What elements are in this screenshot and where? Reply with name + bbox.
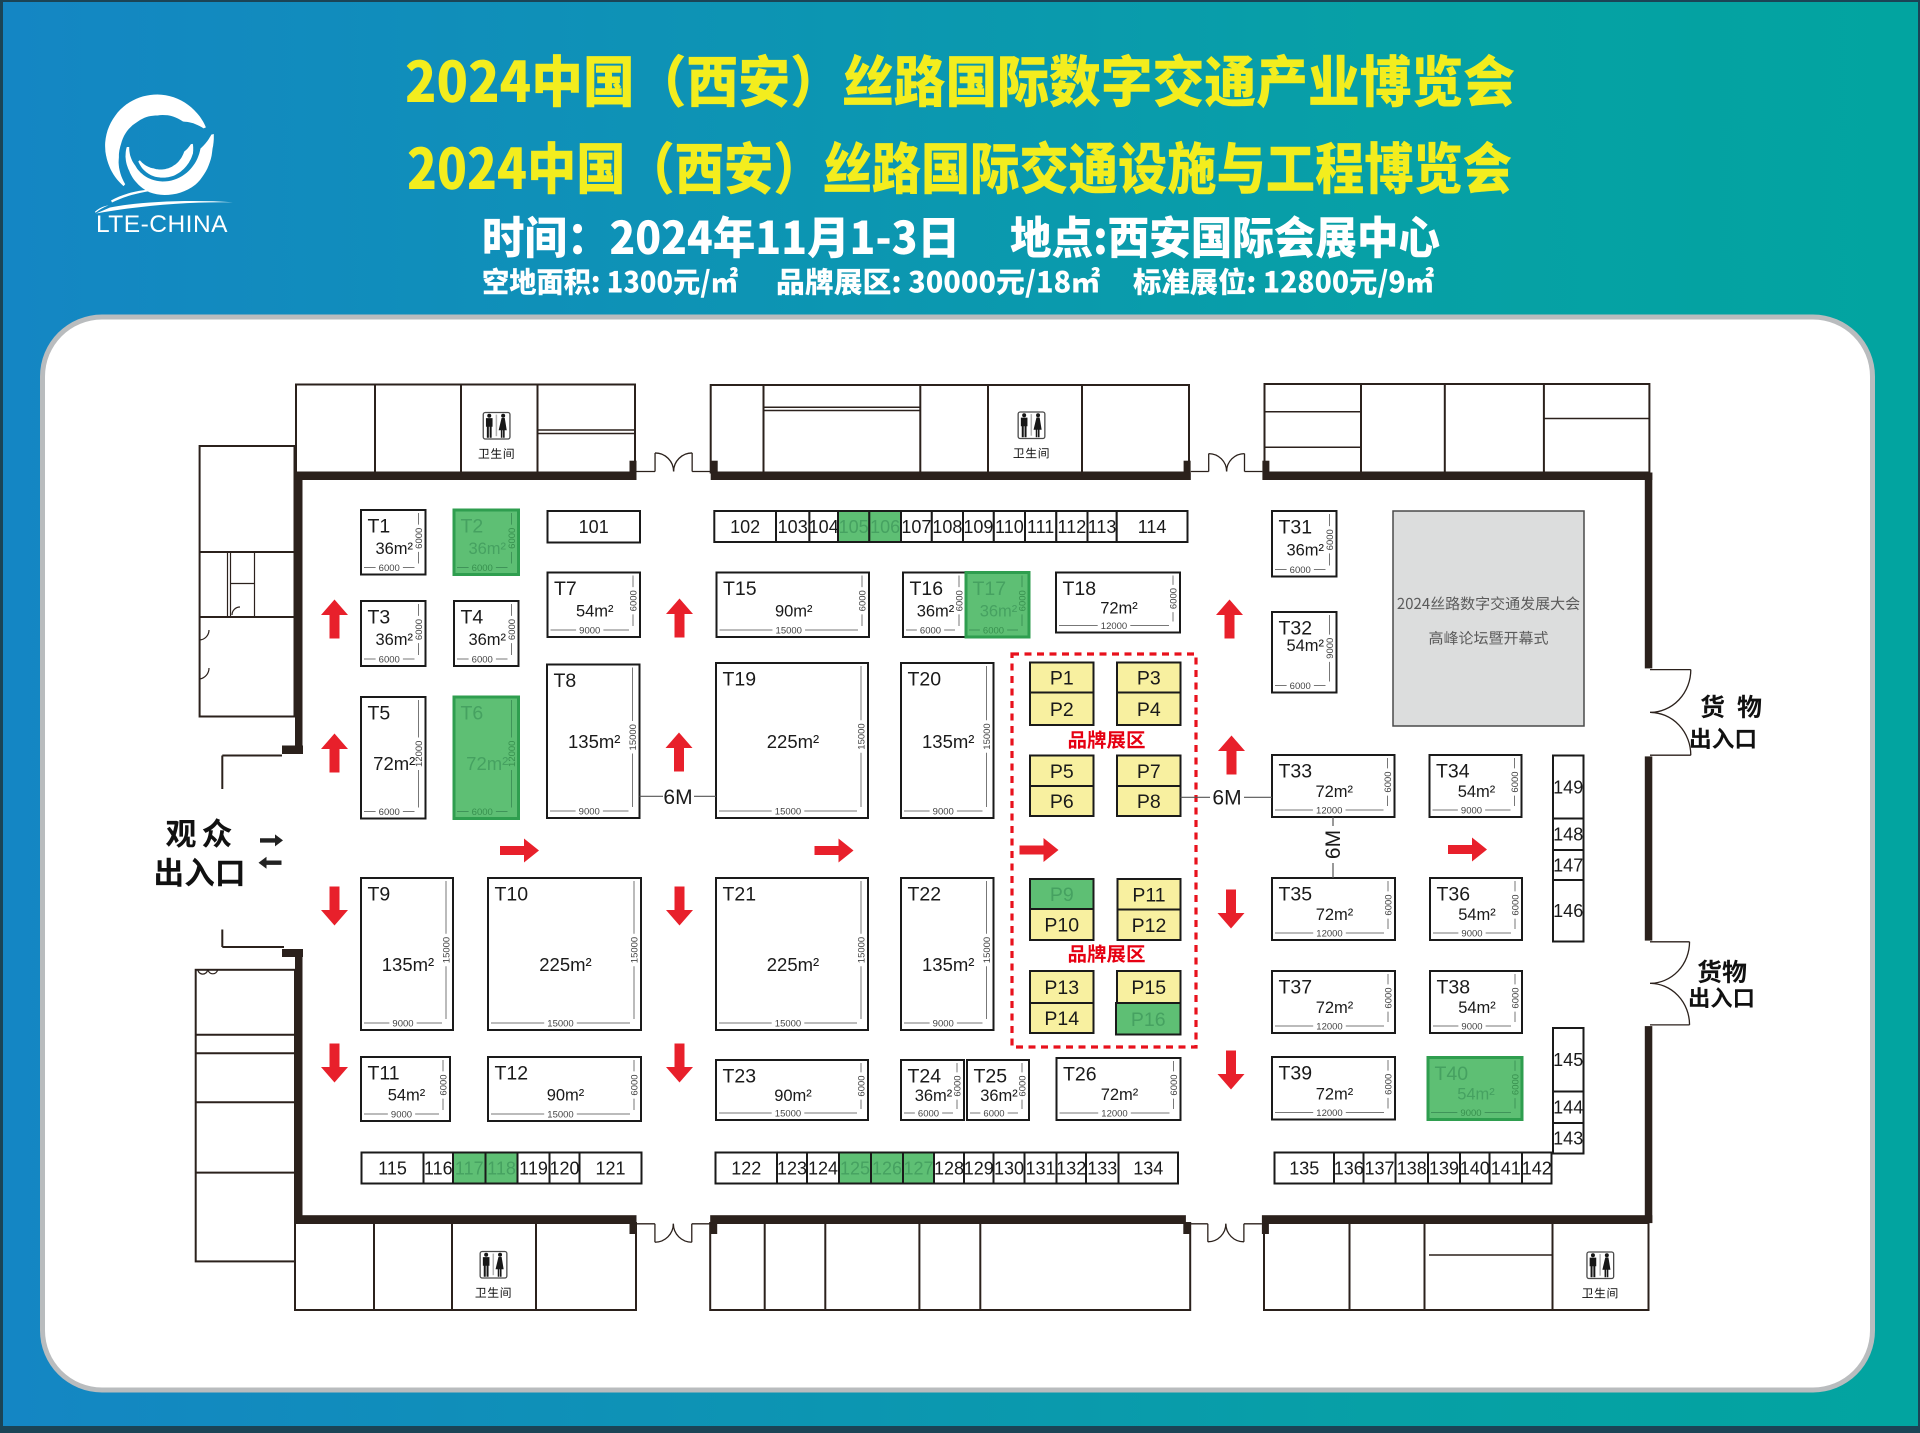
svg-text:6000: 6000: [379, 563, 400, 574]
svg-text:36m²: 36m²: [1286, 542, 1324, 560]
svg-text:T40: T40: [1435, 1063, 1469, 1085]
svg-text:12000: 12000: [414, 741, 425, 767]
svg-text:T25: T25: [974, 1066, 1008, 1088]
svg-text:T38: T38: [1437, 977, 1471, 999]
svg-text:P9: P9: [1050, 884, 1074, 906]
svg-text:118: 118: [487, 1158, 516, 1178]
svg-text:120: 120: [549, 1158, 579, 1178]
svg-text:132: 132: [1056, 1158, 1086, 1178]
svg-text:T23: T23: [723, 1066, 757, 1088]
svg-text:72m²: 72m²: [466, 753, 508, 774]
svg-text:T7: T7: [554, 578, 577, 600]
svg-text:54m²: 54m²: [388, 1087, 426, 1105]
svg-text:6000: 6000: [1383, 1074, 1394, 1095]
svg-text:225m²: 225m²: [539, 954, 591, 975]
svg-text:6000: 6000: [1383, 771, 1394, 792]
svg-text:T35: T35: [1279, 884, 1313, 906]
svg-text:72m²: 72m²: [373, 753, 415, 774]
svg-text:145: 145: [1553, 1050, 1583, 1070]
svg-text:54m²: 54m²: [576, 602, 614, 620]
svg-text:P15: P15: [1131, 977, 1166, 999]
svg-text:148: 148: [1553, 825, 1583, 845]
svg-text:6000: 6000: [918, 1108, 939, 1119]
svg-text:101: 101: [579, 517, 609, 537]
svg-text:225m²: 225m²: [767, 731, 819, 752]
svg-text:36m²: 36m²: [980, 1087, 1018, 1105]
svg-text:147: 147: [1553, 855, 1583, 875]
svg-text:15000: 15000: [628, 724, 639, 750]
svg-text:111: 111: [1027, 517, 1054, 537]
svg-text:T3: T3: [368, 607, 391, 629]
svg-text:6000: 6000: [1510, 1074, 1521, 1095]
svg-text:15000: 15000: [441, 937, 452, 963]
svg-text:106: 106: [870, 517, 900, 537]
svg-text:9000: 9000: [392, 1018, 413, 1029]
svg-text:6000: 6000: [379, 654, 400, 665]
svg-text:116: 116: [424, 1158, 453, 1178]
svg-text:9000: 9000: [1460, 1108, 1481, 1119]
svg-text:T6: T6: [461, 703, 484, 725]
svg-text:6000: 6000: [857, 590, 868, 611]
svg-text:105: 105: [839, 517, 869, 537]
svg-text:P12: P12: [1132, 915, 1167, 937]
svg-text:102: 102: [730, 517, 760, 537]
svg-text:P3: P3: [1137, 668, 1161, 690]
svg-text:36m²: 36m²: [375, 631, 413, 649]
svg-text:138: 138: [1397, 1158, 1427, 1178]
svg-text:P10: P10: [1044, 915, 1079, 937]
svg-text:131: 131: [1025, 1158, 1055, 1178]
svg-text:9000: 9000: [933, 806, 954, 817]
svg-text:T12: T12: [495, 1063, 529, 1085]
svg-text:P11: P11: [1132, 884, 1165, 906]
svg-text:6000: 6000: [1169, 1074, 1180, 1095]
svg-text:124: 124: [808, 1158, 838, 1178]
svg-text:P6: P6: [1050, 791, 1074, 813]
svg-text:115: 115: [378, 1158, 407, 1178]
svg-text:T26: T26: [1063, 1064, 1097, 1086]
svg-text:125: 125: [840, 1158, 870, 1178]
svg-text:72m²: 72m²: [1316, 999, 1354, 1017]
svg-text:142: 142: [1522, 1158, 1552, 1178]
svg-text:12000: 12000: [507, 741, 518, 767]
svg-text:54m²: 54m²: [1286, 637, 1324, 655]
svg-text:6000: 6000: [438, 1074, 449, 1095]
svg-text:112: 112: [1058, 517, 1087, 537]
svg-text:104: 104: [809, 517, 839, 537]
svg-text:P4: P4: [1137, 699, 1161, 721]
svg-text:135m²: 135m²: [922, 731, 974, 752]
svg-text:90m²: 90m²: [774, 1087, 812, 1105]
svg-text:72m²: 72m²: [1316, 1086, 1354, 1104]
svg-text:128: 128: [934, 1158, 964, 1178]
svg-text:146: 146: [1553, 901, 1583, 921]
svg-text:T11: T11: [368, 1063, 400, 1085]
svg-text:T17: T17: [973, 578, 1007, 600]
svg-text:114: 114: [1138, 517, 1167, 537]
svg-text:6000: 6000: [1510, 894, 1521, 915]
svg-text:6000: 6000: [472, 563, 493, 574]
svg-text:T2: T2: [461, 516, 484, 538]
svg-text:P2: P2: [1050, 699, 1074, 721]
svg-text:134: 134: [1133, 1158, 1163, 1178]
svg-text:P8: P8: [1137, 791, 1161, 813]
svg-text:9000: 9000: [1461, 1021, 1482, 1032]
svg-text:T34: T34: [1436, 761, 1470, 783]
svg-text:141: 141: [1491, 1158, 1521, 1178]
svg-text:T15: T15: [723, 578, 757, 600]
svg-text:T4: T4: [461, 607, 484, 629]
svg-text:72m²: 72m²: [1101, 1086, 1139, 1104]
svg-text:121: 121: [595, 1158, 625, 1178]
svg-text:36m²: 36m²: [917, 602, 955, 620]
svg-text:36m²: 36m²: [468, 631, 506, 649]
svg-text:6000: 6000: [1325, 529, 1336, 550]
svg-text:6000: 6000: [856, 1075, 867, 1096]
svg-text:12000: 12000: [1101, 1108, 1127, 1119]
svg-text:143: 143: [1553, 1129, 1583, 1149]
svg-text:144: 144: [1553, 1098, 1583, 1118]
svg-text:127: 127: [903, 1158, 933, 1178]
svg-text:12000: 12000: [1101, 621, 1127, 632]
svg-text:109: 109: [963, 517, 993, 537]
svg-text:36m²: 36m²: [915, 1087, 953, 1105]
svg-text:T10: T10: [495, 884, 529, 906]
svg-text:90m²: 90m²: [547, 1087, 585, 1105]
svg-text:9000: 9000: [1461, 805, 1482, 816]
svg-text:36m²: 36m²: [980, 602, 1018, 620]
svg-text:90m²: 90m²: [775, 602, 813, 620]
svg-text:6000: 6000: [954, 590, 965, 611]
svg-text:15000: 15000: [629, 937, 640, 963]
svg-text:225m²: 225m²: [767, 954, 819, 975]
svg-text:T16: T16: [910, 578, 944, 600]
svg-text:6000: 6000: [472, 654, 493, 665]
svg-text:6000: 6000: [1510, 987, 1521, 1008]
svg-text:T39: T39: [1279, 1063, 1313, 1085]
svg-text:136: 136: [1334, 1158, 1364, 1178]
svg-text:T22: T22: [908, 884, 942, 906]
svg-text:6M: 6M: [1322, 830, 1345, 859]
svg-text:6M: 6M: [1212, 787, 1241, 810]
svg-text:126: 126: [872, 1158, 902, 1178]
svg-text:6000: 6000: [507, 619, 518, 640]
svg-text:6000: 6000: [379, 807, 400, 818]
svg-text:137: 137: [1364, 1158, 1394, 1178]
svg-text:T1: T1: [368, 516, 391, 538]
svg-text:15000: 15000: [856, 723, 867, 749]
svg-text:T18: T18: [1063, 578, 1097, 600]
svg-text:T21: T21: [723, 884, 757, 906]
svg-text:15000: 15000: [775, 1018, 801, 1029]
svg-text:6000: 6000: [1383, 894, 1394, 915]
svg-text:108: 108: [932, 517, 962, 537]
svg-text:149: 149: [1553, 777, 1583, 797]
svg-text:129: 129: [964, 1158, 994, 1178]
svg-text:T8: T8: [554, 670, 577, 692]
svg-text:6000: 6000: [983, 625, 1004, 636]
svg-text:6000: 6000: [414, 528, 425, 549]
svg-text:15000: 15000: [775, 806, 801, 817]
svg-text:9000: 9000: [1325, 638, 1336, 659]
svg-text:110: 110: [995, 517, 1024, 537]
svg-text:15000: 15000: [547, 1109, 573, 1120]
svg-text:9000: 9000: [579, 806, 600, 817]
svg-text:P14: P14: [1044, 1008, 1079, 1030]
svg-text:LTE-CHINA: LTE-CHINA: [96, 211, 228, 238]
svg-text:15000: 15000: [775, 1108, 801, 1119]
svg-text:6000: 6000: [952, 1075, 963, 1096]
svg-text:12000: 12000: [1316, 928, 1342, 939]
svg-text:54m²: 54m²: [1458, 999, 1496, 1017]
svg-text:P16: P16: [1131, 1009, 1166, 1031]
svg-text:107: 107: [901, 517, 931, 537]
svg-text:72m²: 72m²: [1316, 906, 1354, 924]
svg-text:119: 119: [519, 1158, 548, 1178]
svg-text:T31: T31: [1279, 517, 1313, 539]
svg-text:6000: 6000: [414, 619, 425, 640]
svg-text:135m²: 135m²: [568, 731, 620, 752]
svg-text:133: 133: [1087, 1158, 1117, 1178]
svg-text:139: 139: [1429, 1158, 1459, 1178]
svg-text:15000: 15000: [856, 937, 867, 963]
svg-text:15000: 15000: [776, 625, 802, 636]
svg-text:15000: 15000: [547, 1018, 573, 1029]
svg-text:12000: 12000: [1316, 1108, 1342, 1119]
svg-text:36m²: 36m²: [468, 540, 506, 558]
svg-text:54m²: 54m²: [1457, 1086, 1495, 1104]
svg-text:6000: 6000: [1017, 1075, 1028, 1096]
svg-text:140: 140: [1460, 1158, 1490, 1178]
svg-text:54m²: 54m²: [1458, 906, 1496, 924]
svg-text:T20: T20: [908, 669, 942, 691]
svg-text:123: 123: [777, 1158, 807, 1178]
svg-text:6000: 6000: [983, 1108, 1004, 1119]
svg-text:122: 122: [731, 1158, 761, 1178]
svg-text:72m²: 72m²: [1315, 783, 1353, 801]
svg-text:135m²: 135m²: [382, 954, 434, 975]
svg-text:117: 117: [455, 1158, 484, 1178]
svg-text:6000: 6000: [920, 625, 941, 636]
svg-text:6000: 6000: [1383, 987, 1394, 1008]
svg-text:12000: 12000: [1316, 805, 1342, 816]
svg-text:130: 130: [994, 1158, 1024, 1178]
svg-text:135: 135: [1289, 1158, 1319, 1178]
svg-text:T36: T36: [1437, 884, 1471, 906]
svg-text:9000: 9000: [933, 1018, 954, 1029]
svg-text:T24: T24: [908, 1066, 942, 1088]
svg-text:P5: P5: [1050, 761, 1074, 783]
svg-text:9000: 9000: [1461, 928, 1482, 939]
svg-text:T5: T5: [368, 703, 391, 725]
svg-text:P7: P7: [1137, 761, 1161, 783]
svg-text:P1: P1: [1050, 668, 1074, 690]
svg-text:54m²: 54m²: [1458, 783, 1496, 801]
svg-text:113: 113: [1088, 517, 1117, 537]
svg-text:12000: 12000: [1316, 1021, 1342, 1032]
svg-text:6M: 6M: [663, 786, 692, 809]
svg-text:T9: T9: [368, 884, 391, 906]
svg-text:T19: T19: [723, 669, 757, 691]
svg-text:72m²: 72m²: [1100, 599, 1138, 617]
svg-text:P13: P13: [1044, 977, 1079, 999]
svg-text:6000: 6000: [1290, 565, 1311, 576]
svg-text:36m²: 36m²: [375, 540, 413, 558]
svg-text:T37: T37: [1279, 977, 1313, 999]
svg-text:6000: 6000: [472, 807, 493, 818]
svg-text:15000: 15000: [982, 937, 993, 963]
svg-text:6000: 6000: [1510, 771, 1521, 792]
svg-text:6000: 6000: [507, 528, 518, 549]
svg-text:9000: 9000: [391, 1109, 412, 1120]
svg-text:103: 103: [778, 517, 808, 537]
svg-text:T33: T33: [1279, 761, 1313, 783]
svg-text:15000: 15000: [982, 723, 993, 749]
svg-text:9000: 9000: [579, 625, 600, 636]
svg-text:6000: 6000: [1290, 681, 1311, 692]
svg-text:6000: 6000: [1017, 590, 1028, 611]
svg-text:135m²: 135m²: [922, 954, 974, 975]
svg-text:6000: 6000: [1168, 588, 1179, 609]
svg-text:6000: 6000: [629, 1074, 640, 1095]
svg-text:6000: 6000: [628, 590, 639, 611]
